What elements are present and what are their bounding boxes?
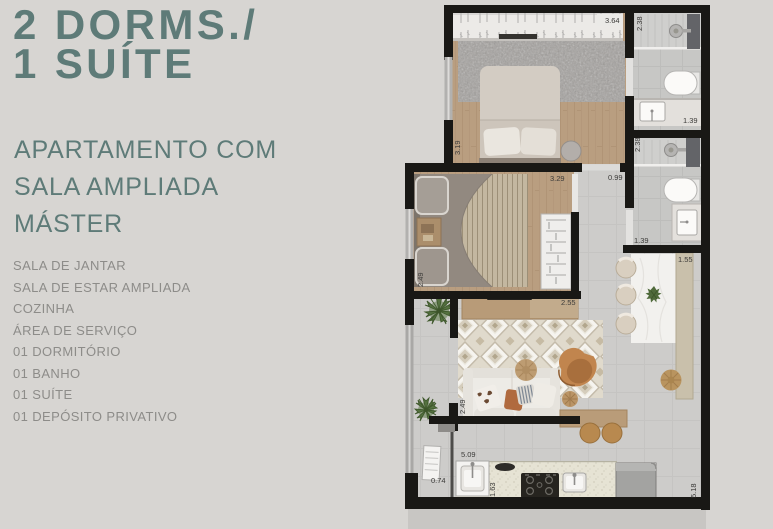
svg-text:5.18: 5.18 xyxy=(689,483,698,498)
svg-text:2.38: 2.38 xyxy=(635,16,644,31)
svg-text:3.29: 3.29 xyxy=(550,174,565,183)
svg-text:2.49: 2.49 xyxy=(458,399,467,414)
svg-text:1.39: 1.39 xyxy=(634,236,649,245)
svg-text:3.64: 3.64 xyxy=(605,16,620,25)
svg-text:1.55: 1.55 xyxy=(678,255,693,264)
svg-text:5.09: 5.09 xyxy=(461,450,476,459)
svg-text:2.49: 2.49 xyxy=(416,272,425,287)
svg-text:1.39: 1.39 xyxy=(683,116,698,125)
svg-text:0.74: 0.74 xyxy=(431,476,446,485)
svg-text:1.63: 1.63 xyxy=(488,482,497,497)
svg-text:0.99: 0.99 xyxy=(608,173,623,182)
svg-text:2.55: 2.55 xyxy=(561,298,576,307)
svg-text:3.19: 3.19 xyxy=(453,140,462,155)
svg-text:2.38: 2.38 xyxy=(633,137,642,152)
